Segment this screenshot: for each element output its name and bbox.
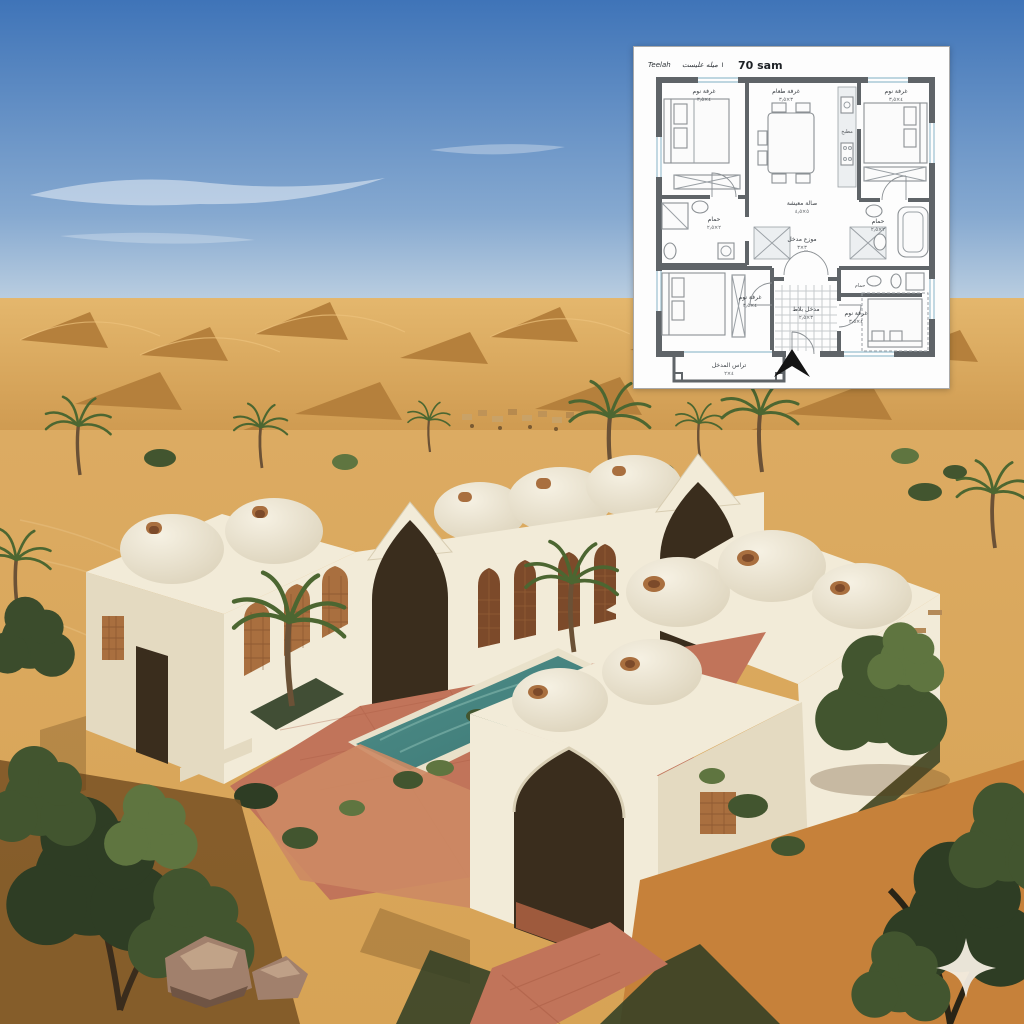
wooden-spout [928, 610, 942, 615]
plan-shafts [754, 227, 886, 259]
plan-title-area: 70 sam [738, 59, 783, 72]
svg-text:٢×٢٫٥: ٢×٢٫٥ [707, 225, 721, 231]
floor-plan: Teelah ١ ميله عليست 70 sam [634, 47, 949, 388]
label-bedroom-bottom-left: غرفة نوم [739, 294, 762, 301]
plan-kitchen [838, 87, 856, 187]
floor-plan-inset: Teelah ١ ميله عليست 70 sam [633, 46, 950, 389]
label-living-hall: صالة معيشة [787, 200, 817, 207]
dome [225, 498, 323, 564]
svg-text:٢×٢٫٥: ٢×٢٫٥ [871, 227, 885, 233]
svg-text:٤×٣٫٥: ٤×٣٫٥ [697, 97, 711, 103]
svg-text:٤×٣٫٥: ٤×٣٫٥ [889, 97, 903, 103]
svg-text:٣×٣٫٥: ٣×٣٫٥ [779, 97, 793, 103]
label-bath-small: حمام [855, 283, 866, 289]
svg-text:٣×٣: ٣×٣ [797, 245, 807, 251]
label-terrace: تراس المدخل [712, 362, 747, 369]
label-kitchen: مطبخ [841, 129, 853, 135]
svg-text:٥×٤٫٥: ٥×٤٫٥ [795, 209, 809, 215]
desert-house-visualization: Teelah ١ ميله عليست 70 sam [0, 0, 1024, 1024]
plan-furniture [662, 99, 928, 351]
label-bedroom-top-right: غرفة نوم [885, 88, 908, 95]
dome [120, 514, 224, 584]
lattice-window [700, 792, 736, 834]
plan-title-name: Teelah [648, 61, 671, 69]
label-bedroom-top-left: غرفة نوم [693, 88, 716, 95]
plan-title-script: ١ ميله عليست [682, 61, 724, 69]
label-bath-left: حمام [708, 216, 721, 223]
label-hall-distributor: موزع مدخل [787, 236, 816, 243]
svg-text:٤×٣٫٥: ٤×٣٫٥ [743, 303, 757, 309]
wooden-door [136, 646, 168, 764]
label-dining: غرفة طعام [772, 88, 800, 95]
svg-text:٤×٢: ٤×٢ [724, 371, 734, 377]
svg-text:٣×٢٫٥: ٣×٢٫٥ [799, 315, 813, 321]
label-bedroom-bottom-right: غرفة نوم [845, 310, 868, 317]
svg-text:٤×٣٫٥: ٤×٣٫٥ [849, 319, 863, 325]
label-entry: مدخل بلاط [792, 306, 819, 313]
label-bath-right: حمام [872, 218, 885, 225]
